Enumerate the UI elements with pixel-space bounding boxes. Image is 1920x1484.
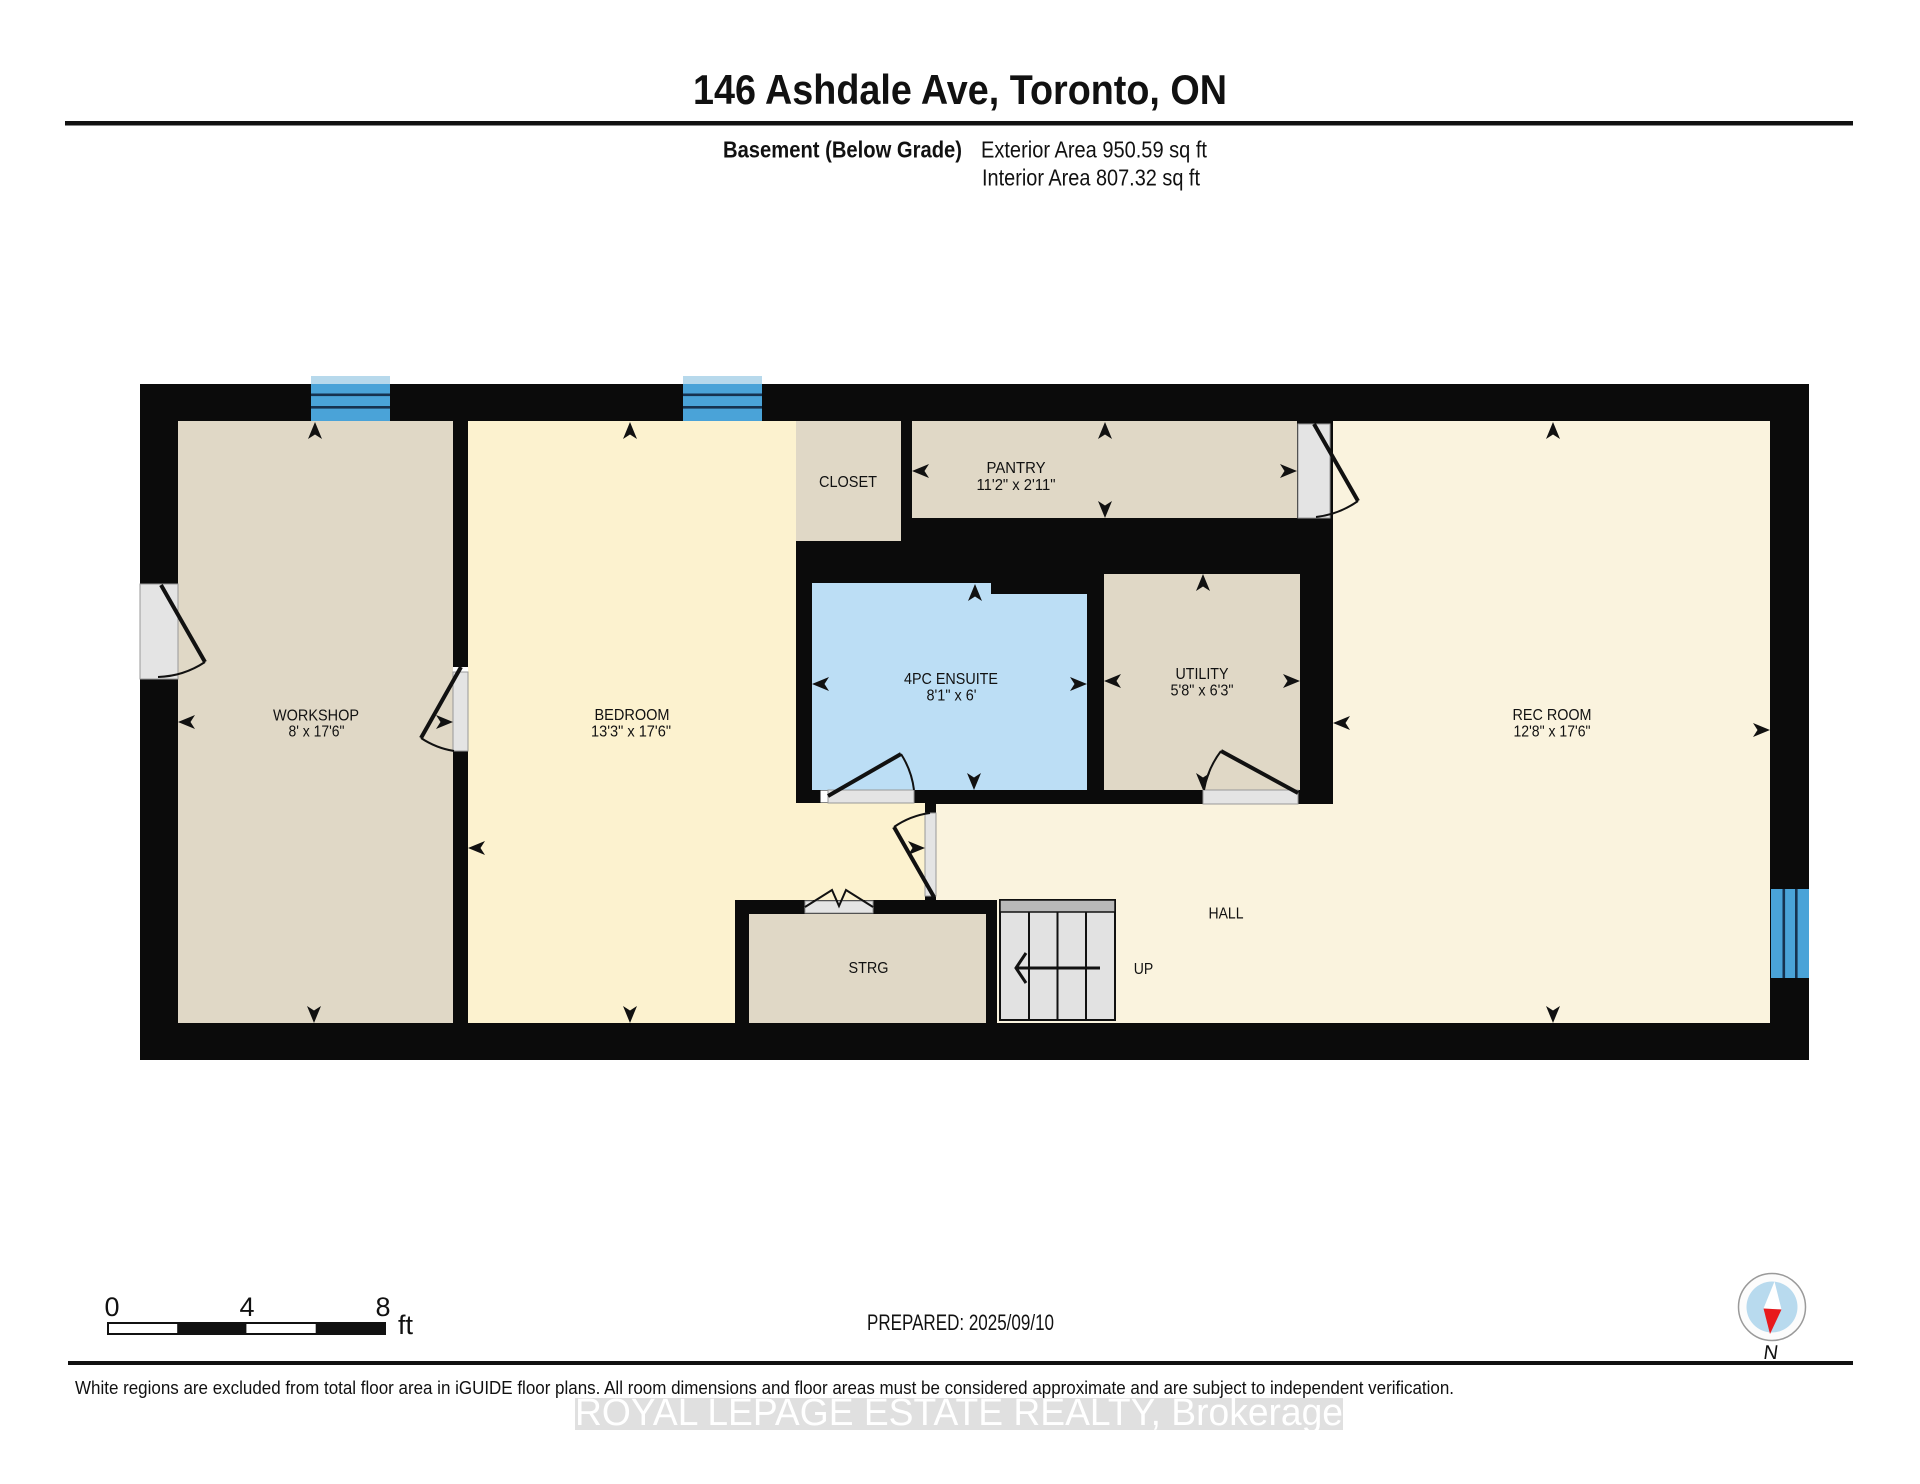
- svg-text:0: 0: [104, 1292, 119, 1322]
- svg-text:BEDROOM: BEDROOM: [595, 707, 670, 724]
- svg-text:N: N: [1762, 1342, 1780, 1364]
- svg-text:8'1" x 6': 8'1" x 6': [927, 688, 977, 705]
- svg-text:UTILITY: UTILITY: [1176, 666, 1229, 683]
- svg-text:ROYAL LEPAGE ESTATE REALTY, Br: ROYAL LEPAGE ESTATE REALTY, Brokerage: [575, 1392, 1343, 1434]
- svg-text:11'2" x 2'11": 11'2" x 2'11": [977, 477, 1056, 494]
- svg-text:UP: UP: [1134, 961, 1154, 978]
- svg-text:8: 8: [375, 1292, 390, 1322]
- svg-text:PREPARED: 2025/09/10: PREPARED: 2025/09/10: [867, 1310, 1054, 1335]
- svg-text:Basement (Below Grade): Basement (Below Grade): [723, 137, 962, 163]
- svg-text:146 Ashdale Ave, Toronto, ON: 146 Ashdale Ave, Toronto, ON: [693, 66, 1227, 113]
- svg-text:8' x 17'6": 8' x 17'6": [289, 724, 345, 741]
- svg-text:CLOSET: CLOSET: [819, 474, 877, 491]
- svg-text:STRG: STRG: [849, 960, 889, 977]
- svg-text:4PC ENSUITE: 4PC ENSUITE: [904, 671, 998, 688]
- svg-text:4: 4: [239, 1292, 254, 1322]
- svg-text:Interior Area 807.32 sq ft: Interior Area 807.32 sq ft: [982, 165, 1201, 191]
- svg-text:REC ROOM: REC ROOM: [1513, 707, 1592, 724]
- svg-text:PANTRY: PANTRY: [987, 460, 1047, 477]
- svg-text:ft: ft: [398, 1310, 414, 1340]
- svg-text:13'3" x 17'6": 13'3" x 17'6": [591, 724, 671, 741]
- svg-text:Exterior Area 950.59 sq ft: Exterior Area 950.59 sq ft: [981, 137, 1208, 163]
- svg-text:12'8" x 17'6": 12'8" x 17'6": [1514, 724, 1591, 741]
- svg-text:WORKSHOP: WORKSHOP: [273, 708, 359, 725]
- svg-text:5'8" x 6'3": 5'8" x 6'3": [1171, 683, 1234, 700]
- svg-text:HALL: HALL: [1209, 906, 1244, 923]
